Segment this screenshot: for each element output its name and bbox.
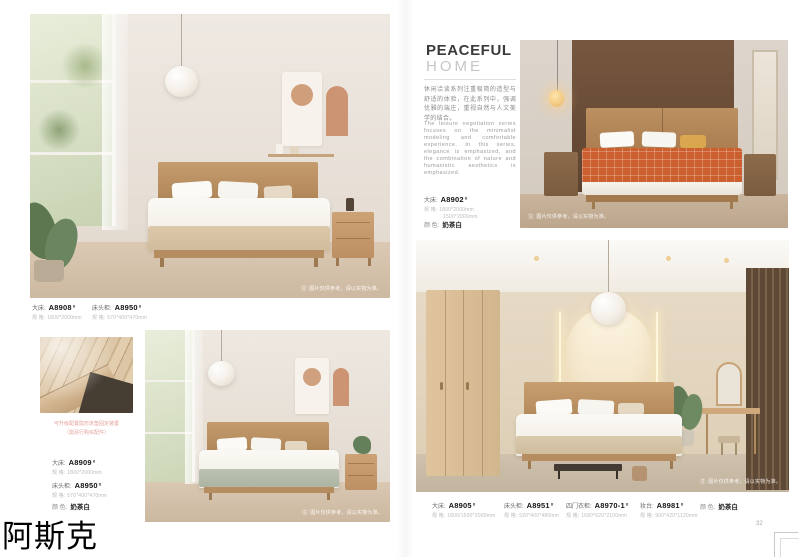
product-type: 床头柜:: [92, 303, 112, 312]
outdoor-greenery: [36, 110, 82, 150]
spec-value: 1800/1500*2000mm: [447, 513, 495, 519]
product-code-sup: #: [551, 502, 554, 507]
bed-base: [204, 487, 334, 493]
nightstand-plant: [353, 436, 371, 454]
bed-leg: [528, 461, 531, 469]
photo-note: 注: 图片仅供参考，请以实物为准。: [528, 213, 609, 220]
spec-value: 900*420*1120mm: [655, 513, 697, 519]
spec-label: 规 格:: [92, 315, 106, 321]
spec-value: 570*400*470mm: [107, 315, 147, 321]
drawer-line: [336, 238, 370, 239]
ceiling-spotlight: [724, 258, 729, 263]
wardrobe-door-seam: [482, 290, 483, 476]
bedroom-photo-a8908: 注: 图片仅供参考，请以实物为准。: [30, 14, 390, 298]
ceiling-spotlight: [666, 256, 671, 261]
spec-value: 1800*2000mm: [47, 315, 82, 321]
color-line-right: 颜 色:奶茶白: [700, 501, 738, 511]
wall-art-circle: [291, 84, 313, 106]
spec-value: 1800*2000mm: [439, 207, 474, 213]
wardrobe-door-seam: [463, 290, 464, 476]
product-label-a8905: 大床:A8905# 规 格: 1800/1500*2000mm: [432, 501, 495, 519]
pendant-cord: [221, 330, 222, 364]
product-label-a8981: 妆台:A8981# 规 格: 900*420*1120mm: [640, 501, 698, 519]
corner-line-art-inner: [780, 538, 799, 557]
product-label-a8970-1: 四门衣柜:A8970-1# 规 格: 1680*620*2100mm: [566, 501, 630, 519]
vanity-stool: [718, 436, 740, 443]
corner-line-art: [774, 532, 798, 557]
drawer-line: [336, 222, 370, 223]
nightstand: [744, 154, 776, 196]
spec-label: 规 格:: [424, 207, 438, 213]
product-type: 床头柜:: [504, 501, 524, 510]
desk-leg: [754, 414, 756, 454]
bench-leg: [616, 471, 618, 479]
title-divider: [424, 79, 516, 80]
stool-leg: [721, 443, 723, 455]
nightstand-leg: [368, 258, 371, 266]
product-code: A8951: [527, 501, 550, 510]
product-code: A8908: [49, 303, 72, 312]
wood-slat-screen: [746, 268, 789, 490]
wardrobe: [426, 290, 500, 476]
pendant-lamp: [165, 66, 198, 97]
wall-art-arch: [326, 86, 348, 136]
spec-label: 规 格:: [432, 513, 446, 519]
photo-note: 注: 图片仅供参考，请以实物为准。: [302, 509, 383, 516]
pillow: [600, 131, 635, 148]
window-mullion: [30, 152, 112, 155]
bedroom-photo-a8902: 注: 图片仅供参考，请以实物为准。: [520, 40, 788, 228]
product-label-a8951: 床头柜:A8951# 规 格: 520*400*480mm: [504, 501, 559, 519]
product-code: A8970-1: [595, 501, 625, 510]
photo-note: 注: 图片仅供参考，请以实物为准。: [700, 478, 781, 485]
bench-leg: [558, 471, 560, 479]
product-code: A8981: [657, 501, 680, 510]
nightstand: [345, 454, 377, 490]
pendant-cord: [608, 240, 609, 296]
pendant-bulb: [549, 90, 564, 107]
bed-base: [586, 195, 738, 202]
ceiling-spotlight: [534, 256, 539, 261]
pendant-cord: [557, 40, 558, 92]
drawer-line: [348, 475, 374, 476]
vanity-mirror: [716, 362, 742, 406]
wall-art-panel: [295, 358, 329, 414]
pendant-lamp: [591, 292, 626, 325]
wardrobe-handle: [440, 382, 443, 390]
bed-throw-blanket: [516, 436, 682, 454]
product-code: A8950: [115, 303, 138, 312]
pillow-accent: [680, 135, 706, 148]
product-code-sup: #: [99, 482, 102, 487]
product-label-a8902: 大床:A8902# 规 格: 1800*2000mm 1500*2000mm: [424, 195, 478, 220]
stump-stool: [632, 466, 647, 481]
product-code-sup: #: [473, 502, 476, 507]
plaid-blanket: [582, 148, 742, 184]
pendant-cord: [181, 14, 182, 70]
wall-art-arch: [333, 368, 349, 406]
product-code-sup: #: [465, 196, 468, 201]
wardrobe-door-seam: [445, 290, 446, 476]
bed-throw-blanket: [148, 226, 330, 251]
wall-art-panel: [282, 72, 322, 146]
pillow: [642, 131, 677, 147]
product-label-a8908: 大床:A8908# 规 格: 1800*2000mm: [32, 303, 82, 321]
color-value: 奶茶白: [70, 504, 90, 511]
bed-leg: [670, 461, 673, 469]
color-line-hero: 颜 色:奶茶白: [424, 219, 462, 229]
nightstand-leg: [336, 258, 339, 266]
bed-end-bench: [554, 464, 622, 471]
shelf-vase: [276, 144, 283, 154]
bed-leg: [730, 202, 733, 209]
product-type: 大床:: [424, 195, 438, 204]
catalog-spread: 注: 图片仅供参考，请以实物为准。 大床:A8908# 规 格: 1800*20…: [0, 0, 800, 557]
shelf-vase: [290, 146, 299, 154]
bed-leg: [160, 258, 164, 267]
series-title-line2: HOME: [426, 58, 483, 75]
spec-label: 规 格:: [52, 470, 66, 476]
wood-slat-detail-photo: [40, 337, 133, 413]
bed-base: [522, 454, 676, 461]
decor-vase: [346, 198, 354, 211]
color-value: 奶茶白: [442, 222, 462, 229]
series-description-en: The leisure negotiation series focuses o…: [424, 121, 516, 177]
detail-caption-line2: （需另行购买配件）: [30, 429, 143, 438]
color-value: 奶茶白: [718, 504, 738, 511]
page-number-right: 32: [756, 521, 763, 527]
spec-value: 1680*620*2100mm: [581, 513, 627, 519]
spec-label: 规 格:: [566, 513, 580, 519]
stool-leg: [735, 443, 737, 455]
bed-base: [154, 250, 324, 258]
light-vignette: [40, 337, 133, 413]
spec-label: 规 格:: [504, 513, 518, 519]
page-gutter: [396, 0, 414, 557]
product-code-sup: #: [93, 459, 96, 464]
bed-leg: [327, 493, 330, 500]
spec-value: 520*400*480mm: [519, 513, 559, 519]
series-title-line1: PEACEFUL: [426, 42, 512, 59]
photo-note: 注: 图片仅供参考，请以实物为准。: [301, 285, 382, 292]
bed-sheet-fold: [582, 182, 742, 195]
color-label: 颜 色:: [424, 223, 439, 229]
nightstand: [544, 152, 578, 196]
product-type: 妆台:: [640, 501, 654, 510]
plant-pot: [34, 260, 64, 282]
bed-leg: [314, 258, 318, 267]
drawer-line: [348, 463, 374, 464]
spec-value: 1800*2000mm: [67, 470, 102, 476]
bedroom-photo-a8909: 注: 图片仅供参考，请以实物为准。: [145, 330, 390, 522]
detail-caption: 可升级配置隐形床垫固定装置 （需另行购买配件）: [30, 420, 143, 437]
product-code: A8909: [69, 458, 92, 467]
product-code: A8905: [449, 501, 472, 510]
sheer-curtain: [102, 14, 128, 230]
desk-leg: [706, 414, 708, 454]
bed-leg: [592, 202, 595, 209]
product-code: A8902: [441, 195, 464, 204]
product-code-sup: #: [139, 304, 142, 309]
bed-throw-blanket: [199, 469, 339, 487]
product-code-sup: #: [681, 502, 684, 507]
wall-art-circle: [303, 368, 321, 386]
product-code: A8950: [75, 481, 98, 490]
spec-label: 规 格:: [32, 315, 46, 321]
product-type: 床头柜:: [52, 481, 72, 490]
product-type: 大床:: [52, 458, 66, 467]
product-type: 四门衣柜:: [566, 501, 592, 510]
ceiling: [416, 240, 789, 292]
bedroom-photo-a8905: 注: 图片仅供参考，请以实物为准。: [416, 240, 789, 492]
product-label-a8909: 大床:A8909# 规 格: 1800*2000mm: [52, 458, 102, 476]
color-line-left: 颜 色:奶茶白: [52, 501, 90, 511]
spec-label: 规 格:: [640, 513, 654, 519]
color-label: 颜 色:: [700, 505, 715, 511]
product-code-sup: #: [626, 502, 629, 507]
detail-caption-line1: 可升级配置隐形床垫固定装置: [30, 420, 143, 429]
spec-value: 570*400*470mm: [67, 493, 107, 499]
pendant-lamp: [208, 361, 235, 386]
product-label-a8950: 床头柜:A8950# 规 格: 570*400*470mm: [92, 303, 147, 321]
product-type: 大床:: [432, 501, 446, 510]
spec-label: 规 格:: [52, 493, 66, 499]
color-label: 颜 色:: [52, 505, 67, 511]
series-description-cn: 休闲洽谈系列注重极简的造型与舒适的体验，在此系列中，强调优雅的端庄，重视自然与人…: [424, 86, 516, 124]
bed-leg: [209, 493, 212, 500]
wall-shelf: [268, 154, 334, 157]
product-code-sup: #: [73, 304, 76, 309]
nightstand: [332, 212, 374, 258]
watermark-text: 阿斯克: [2, 521, 98, 552]
product-label-a8950-2: 床头柜:A8950# 规 格: 570*400*470mm: [52, 481, 107, 499]
vanity-desk: [702, 408, 760, 414]
wardrobe-handle: [466, 382, 469, 390]
product-type: 大床:: [32, 303, 46, 312]
